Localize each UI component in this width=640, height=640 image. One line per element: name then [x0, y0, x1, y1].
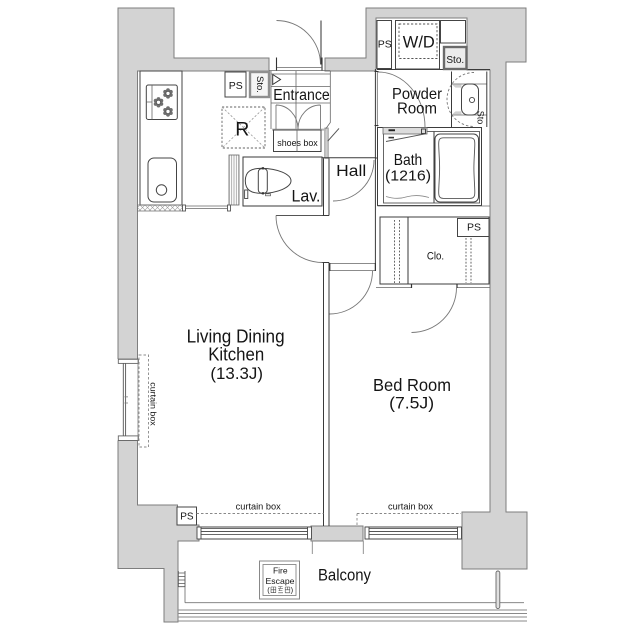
svg-text:PS: PS	[378, 39, 392, 51]
svg-text:curtain box: curtain box	[388, 501, 434, 511]
svg-text:PS: PS	[467, 221, 481, 233]
svg-text:shoes box: shoes box	[277, 138, 318, 149]
svg-text:(1216): (1216)	[385, 167, 431, 184]
svg-text:Fire: Fire	[273, 565, 288, 575]
svg-text:curtain box: curtain box	[236, 501, 282, 511]
svg-text:Sto.: Sto.	[254, 76, 265, 93]
svg-text:Kitchen: Kitchen	[208, 345, 264, 365]
svg-text:PS: PS	[180, 512, 194, 523]
svg-text:Balcony: Balcony	[318, 565, 371, 584]
svg-text:Entrance: Entrance	[273, 87, 330, 104]
svg-text:Sto.: Sto.	[446, 55, 464, 66]
svg-text:W/D: W/D	[403, 34, 435, 52]
svg-text:curtain box: curtain box	[149, 382, 159, 426]
svg-text:Living Dining: Living Dining	[187, 327, 285, 347]
svg-text:Escape: Escape	[266, 576, 295, 586]
svg-text:Bed Room: Bed Room	[373, 375, 451, 395]
svg-text:PS: PS	[229, 80, 243, 92]
svg-text:Room: Room	[397, 101, 437, 118]
svg-text:Lav.: Lav.	[292, 187, 321, 206]
svg-text:Clo.: Clo.	[427, 251, 444, 263]
svg-text:(13.3J): (13.3J)	[210, 365, 263, 383]
svg-text:R: R	[235, 119, 249, 141]
svg-text:Hall: Hall	[336, 163, 366, 180]
svg-text:Sto: Sto	[476, 111, 486, 125]
svg-text:(7.5J): (7.5J)	[389, 395, 434, 413]
